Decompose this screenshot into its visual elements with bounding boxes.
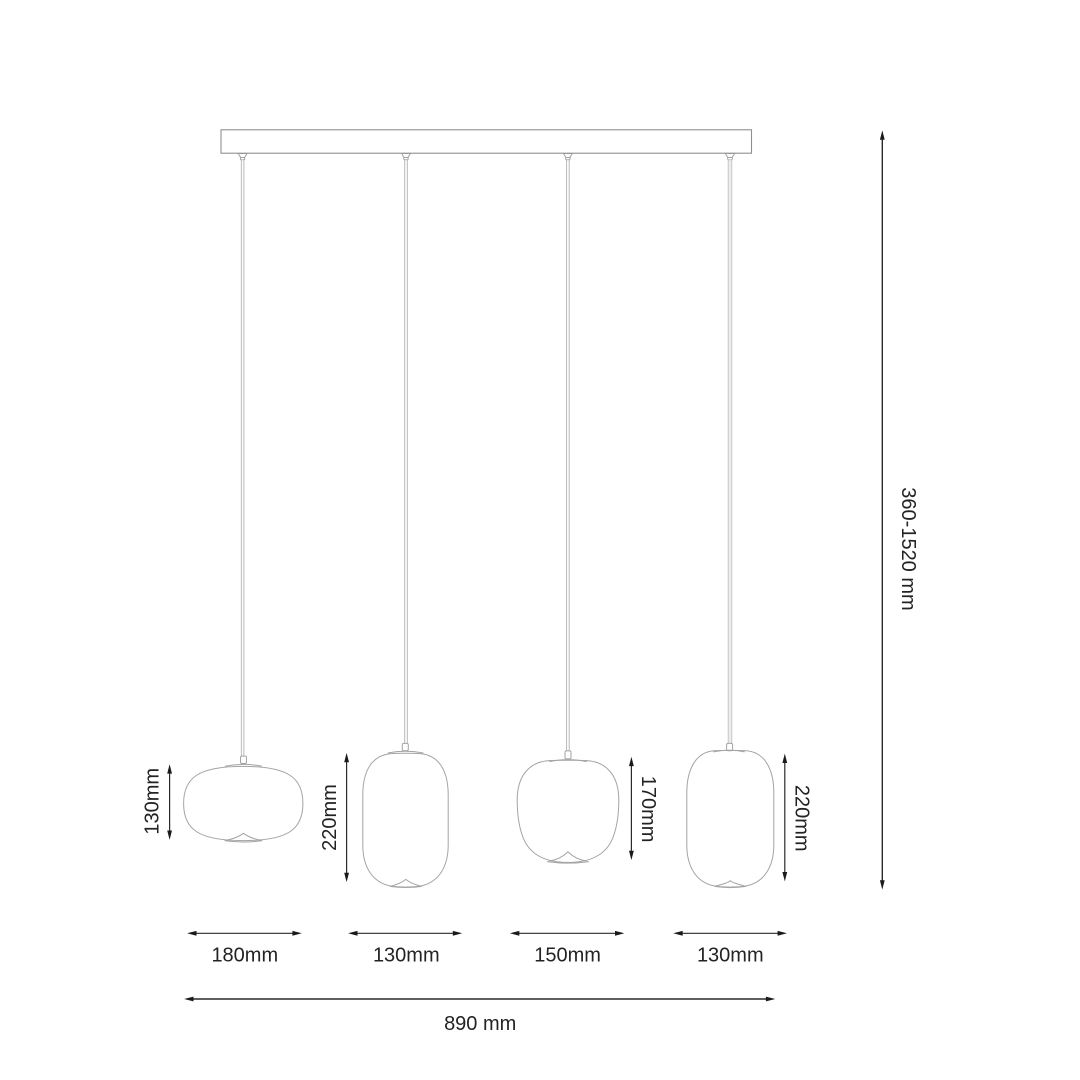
svg-text:130mm: 130mm [373,945,440,967]
svg-text:890 mm: 890 mm [444,1013,516,1035]
svg-text:130mm: 130mm [141,768,163,835]
svg-text:150mm: 150mm [534,945,601,967]
svg-text:220mm: 220mm [791,785,813,852]
svg-text:180mm: 180mm [211,945,278,967]
svg-text:360-1520 mm: 360-1520 mm [897,487,919,610]
svg-text:220mm: 220mm [319,784,341,851]
svg-text:170mm: 170mm [637,776,659,843]
svg-text:130mm: 130mm [697,945,764,967]
